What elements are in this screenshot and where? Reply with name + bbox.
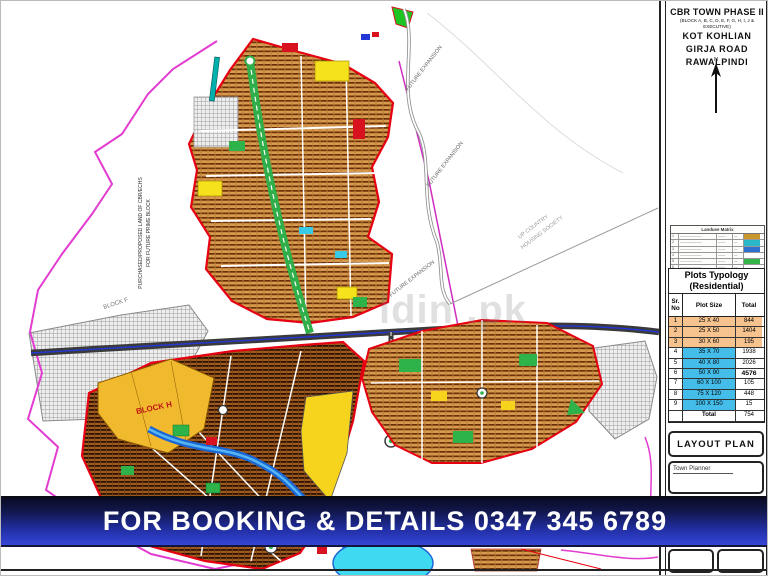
plots-table-header: Sr. No Plot Size Total xyxy=(669,294,764,317)
site-plan-map: BLOCK F BLOCK H PURCHASED/PROPOSED LAND … xyxy=(1,1,661,576)
header-plot-size: Plot Size xyxy=(683,294,736,316)
watermark: ldin .pk xyxy=(379,288,527,332)
label-future-expansion-2: FUTURE EXPANSION xyxy=(426,141,465,188)
label-future-expansion-1: FUTURE EXPANSION xyxy=(405,45,444,92)
label-block-f: BLOCK F xyxy=(103,297,130,311)
plots-table-row: 9100 X 15015 xyxy=(669,400,764,410)
town-planner-label: Town Planner xyxy=(673,465,711,472)
north-blocks xyxy=(189,39,393,333)
future-road xyxy=(404,9,658,304)
plots-table-row: 540 X 802026 xyxy=(669,359,764,369)
plots-table-row: 125 X 40844 xyxy=(669,317,764,327)
total-label: Total xyxy=(683,411,736,421)
label-purchased-land-1: PURCHASED/PROPOSED LAND OF CBR/ECHS xyxy=(138,177,144,289)
north-indicator: N xyxy=(661,57,768,120)
plots-typology-table: Plots Typology (Residential) Sr. No Plot… xyxy=(668,268,765,423)
landuse-matrix-title: Landuse Matrix xyxy=(671,226,764,234)
plots-table-row: 225 X 501404 xyxy=(669,327,764,337)
north-arrow-icon xyxy=(708,63,724,115)
plots-table-row: 330 X 60195 xyxy=(669,338,764,348)
plots-typology-title: Plots Typology (Residential) xyxy=(669,269,764,294)
map-area: BLOCK F BLOCK H PURCHASED/PROPOSED LAND … xyxy=(1,1,661,576)
signature-line xyxy=(673,473,733,474)
page-bottom-border xyxy=(1,569,768,571)
landuse-swatch xyxy=(744,240,760,245)
title-panel: CBR TOWN PHASE II (BLOCK A, B, C, D, E, … xyxy=(659,1,768,576)
plots-table-row: 650 X 904576 xyxy=(669,369,764,379)
booking-banner: FOR BOOKING & DETAILS 0347 345 6789 xyxy=(1,496,768,547)
header-total: Total xyxy=(736,294,762,316)
landuse-swatch xyxy=(744,259,760,264)
plots-table-total-row: Total754 xyxy=(669,411,764,422)
location-line-1: KOT KOHLIAN xyxy=(670,31,764,42)
layout-plan-page: BLOCK F BLOCK H PURCHASED/PROPOSED LAND … xyxy=(0,0,768,576)
total-value: 754 xyxy=(736,411,762,421)
town-planner-box: Town Planner xyxy=(668,461,764,494)
plots-table-row: 875 X 120448 xyxy=(669,390,764,400)
landuse-matrix-table: Landuse Matrix 1————————— 2————————— 3——… xyxy=(670,225,765,273)
plots-table-row: 760 X 100105 xyxy=(669,379,764,389)
header-sr-no: Sr. No xyxy=(669,294,683,316)
blocks-note: (BLOCK A, B, C, D, E, F, G, H, I, J & EX… xyxy=(670,18,764,29)
banner-text: FOR BOOKING & DETAILS 0347 345 6789 xyxy=(103,506,667,537)
label-purchased-land-2: FOR FUTURE PRIME BLOCK xyxy=(146,198,152,266)
layout-plan-box: LAYOUT PLAN xyxy=(668,431,764,457)
layout-plan-label: LAYOUT PLAN xyxy=(677,439,755,450)
location-line-2: GIRJA ROAD xyxy=(670,44,764,55)
plots-table-row: 435 X 701938 xyxy=(669,348,764,358)
landuse-swatch xyxy=(744,247,760,252)
landuse-swatch xyxy=(744,253,760,258)
landuse-swatch xyxy=(744,234,760,239)
project-title: CBR TOWN PHASE II xyxy=(670,7,764,17)
